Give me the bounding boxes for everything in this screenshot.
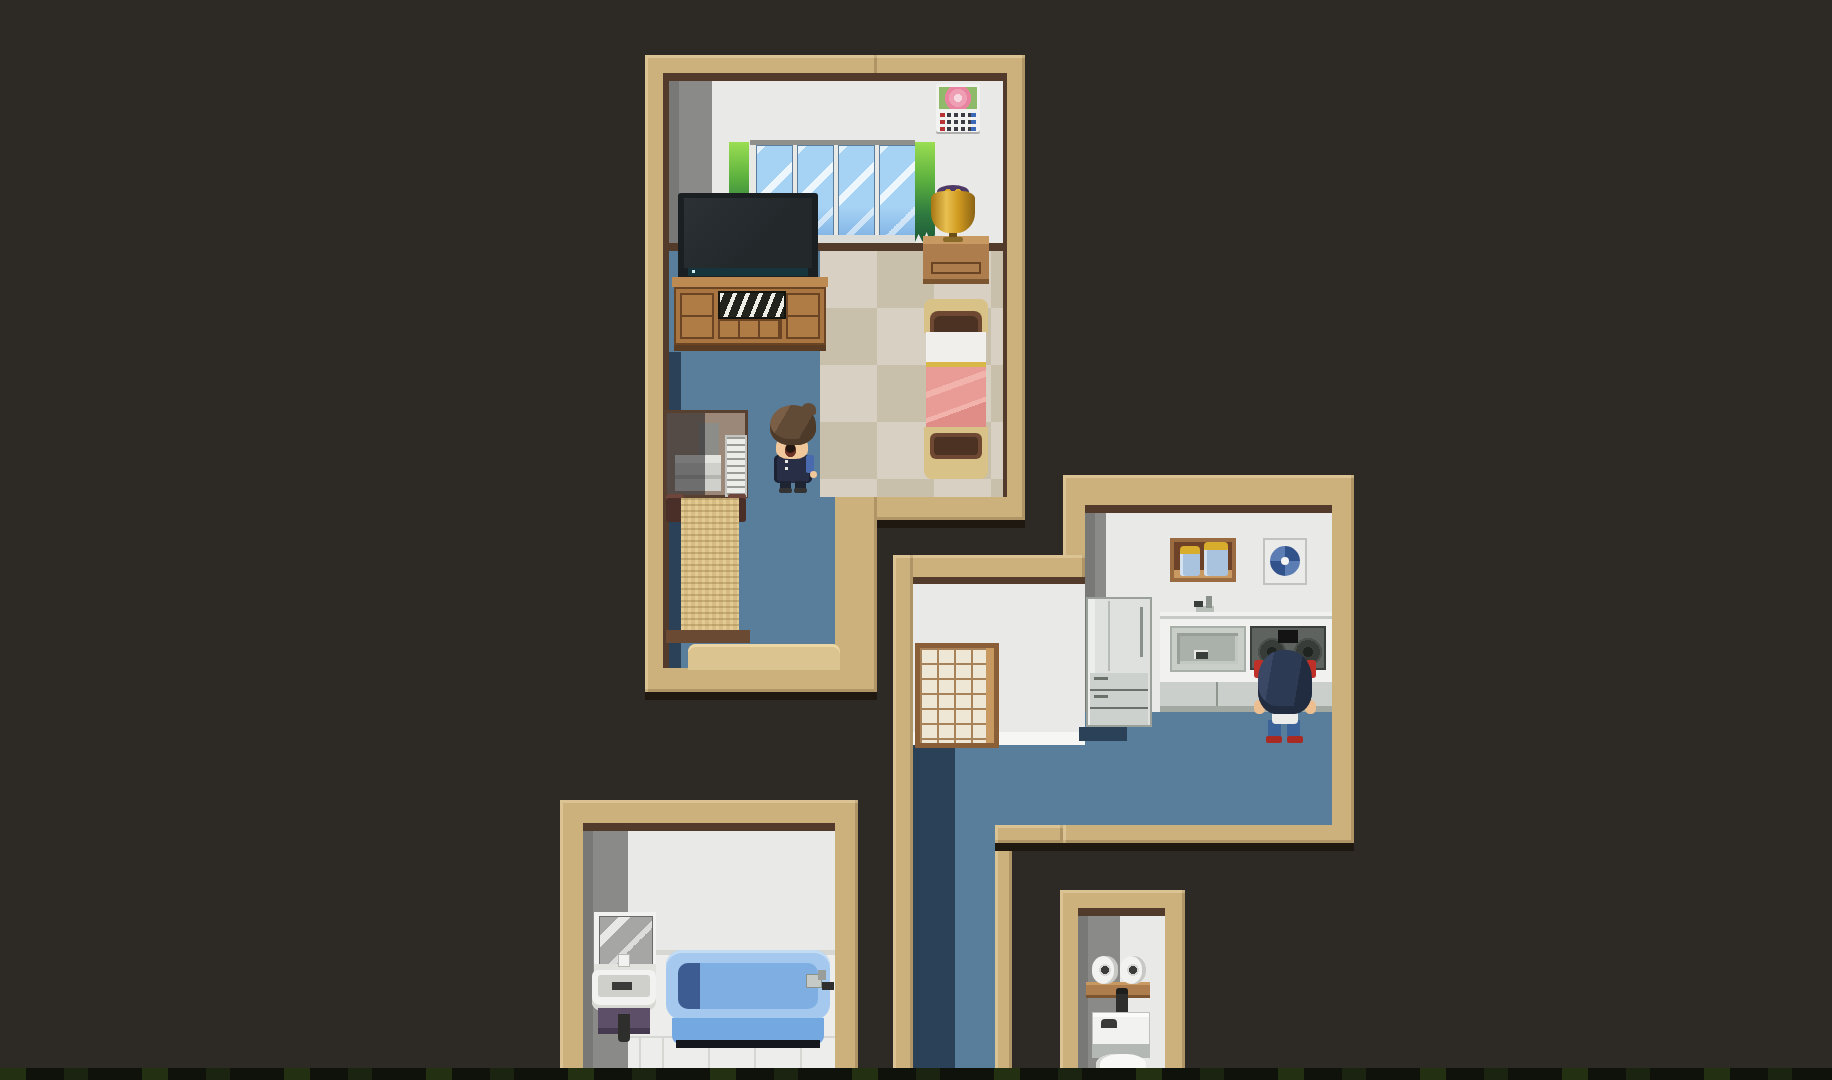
hallway-wall-right — [995, 843, 1012, 1080]
fridge-drawer-handle — [1094, 695, 1108, 698]
toilet-paper-roll — [1120, 956, 1146, 984]
tv-stand — [672, 277, 828, 352]
toilet-paper-roll — [1092, 956, 1118, 984]
washbasin — [592, 970, 656, 1010]
toilet-wall-trim-top — [1078, 908, 1165, 916]
shoji-door-stile — [986, 648, 994, 743]
refrigerator — [1086, 597, 1152, 727]
faucet-spout — [1194, 601, 1203, 607]
sink-basin — [1177, 633, 1238, 664]
player-buttons — [785, 460, 788, 474]
window-pane — [879, 145, 916, 237]
stove-control-box — [1278, 630, 1298, 643]
bedroom-drop-shadow — [645, 692, 877, 700]
bathtub-faucet — [806, 970, 834, 992]
doorway-step[interactable] — [688, 644, 840, 670]
bed-footboard-inner — [934, 437, 978, 455]
npc-character[interactable] — [1254, 648, 1316, 744]
game-viewport[interactable] — [0, 0, 1832, 1080]
bathroom-wall-white — [628, 831, 835, 955]
player-hair-tuft — [802, 403, 816, 415]
player-mouth — [785, 443, 796, 457]
hallway-wall-left — [893, 555, 913, 1080]
shoji-door-panes — [920, 648, 986, 743]
toilet-tank[interactable] — [1092, 1012, 1150, 1048]
mirror-cup — [618, 954, 630, 967]
toilet-spout — [1116, 988, 1128, 1014]
faucet-neck — [1206, 596, 1212, 608]
fridge-door-seam — [1108, 601, 1110, 671]
nightstand-drawer — [931, 262, 981, 274]
bench-edge — [666, 630, 750, 643]
calendar-row — [940, 127, 976, 131]
calendar-row — [940, 120, 976, 124]
fridge-drawers — [1090, 673, 1148, 725]
player-shoe — [794, 488, 807, 493]
jar — [1204, 546, 1228, 576]
bed-headboard-inner — [934, 316, 978, 333]
jar-lid — [1180, 546, 1200, 554]
tv-stand-base-shadow — [674, 345, 826, 351]
counter-back-line — [1160, 616, 1332, 619]
kitchen-extension-trim-top — [913, 577, 1085, 584]
washbasin-drain — [612, 982, 632, 990]
calendar-photo — [939, 87, 977, 109]
bed[interactable] — [924, 299, 988, 479]
sink-soap — [1194, 650, 1208, 659]
player-hand — [810, 471, 817, 478]
nightstand — [923, 236, 989, 284]
tv-stand-top — [672, 277, 828, 287]
room-toilet — [1060, 890, 1185, 1080]
fan-hub — [1281, 557, 1289, 565]
desk-shadow-overlay — [667, 413, 705, 495]
tv-power-led — [692, 270, 695, 273]
fridge-shadow — [1079, 727, 1127, 741]
bed-sheet — [926, 332, 986, 363]
fridge-drawer-handle — [1094, 677, 1108, 680]
bathtub-inner-shadow — [678, 963, 700, 1009]
bedroom-wall-trim-top — [663, 73, 1007, 81]
hallway-floor-shadow-strip — [913, 745, 955, 1080]
room-bathroom — [560, 800, 858, 1080]
bedroom-wall-trim-right — [1003, 81, 1007, 497]
kitchen-drop-shadow — [995, 843, 1354, 851]
npc-hair-back — [1258, 650, 1312, 714]
npc-shoe — [1266, 736, 1282, 743]
calendar-row — [940, 113, 976, 117]
kitchen-wall-bottom-piece — [995, 825, 1063, 843]
lamp-shade — [931, 191, 975, 233]
map-edge-grass-strip — [0, 1068, 1832, 1080]
drain-pipe — [618, 1014, 630, 1042]
flower-calendar — [936, 84, 980, 132]
shoji-door[interactable] — [915, 643, 999, 748]
tv-stand-drawer-left — [680, 293, 714, 339]
desk — [664, 410, 748, 498]
tatami-bench — [681, 498, 739, 632]
bathroom-wall-trim-top — [583, 823, 835, 831]
fridge-handle — [1140, 607, 1143, 657]
jar-shelf — [1170, 538, 1236, 582]
kitchen-sink — [1170, 626, 1246, 672]
keyboard — [725, 435, 747, 497]
faucet-riser — [818, 970, 826, 980]
player-character[interactable] — [768, 403, 820, 493]
lamp-base — [943, 237, 963, 242]
tank-faucet — [1101, 1019, 1117, 1028]
tv-stand-drawer-mid — [718, 319, 782, 339]
npc-shoe — [1287, 736, 1303, 743]
bed-blanket — [926, 367, 986, 428]
jar-lid — [1204, 542, 1228, 550]
ventilation-fan — [1263, 538, 1307, 585]
player-shoe — [779, 488, 792, 493]
window-pane — [838, 145, 875, 237]
tv-screen — [684, 198, 812, 268]
tv-stand-vent-slats — [718, 291, 786, 319]
bathtub — [666, 950, 830, 1050]
lamp — [929, 185, 977, 243]
tv-bottom-bar — [688, 268, 808, 276]
bathtub-base-strip — [676, 1040, 820, 1048]
faucet-spout-dark — [822, 982, 834, 990]
tv — [678, 193, 818, 280]
mirror-cabinet — [594, 912, 656, 974]
tv-stand-drawer-right — [786, 293, 820, 339]
kitchen-wall-trim-top — [1085, 505, 1332, 513]
